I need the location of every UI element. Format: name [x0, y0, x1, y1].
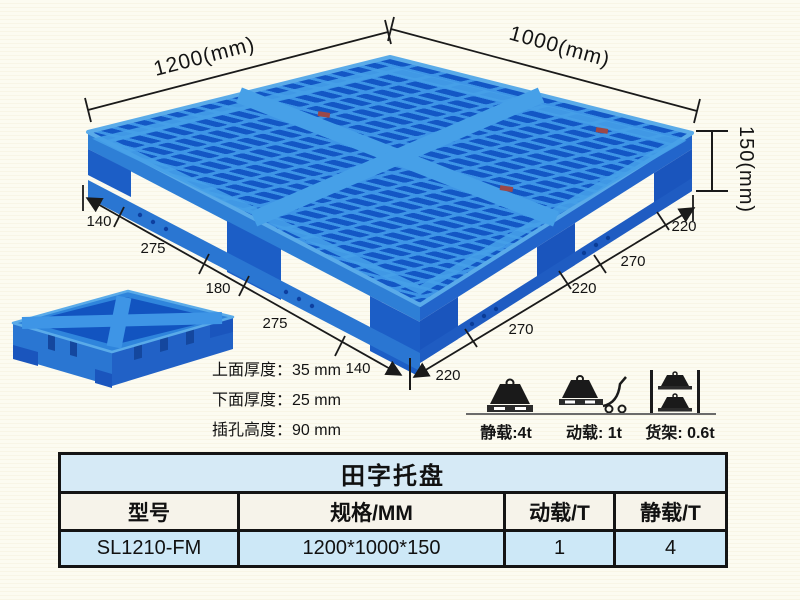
pallet-underside-illustration — [13, 291, 233, 388]
dim-1200-label: 1200(mm) — [151, 33, 257, 81]
static-load-label: 静载:4t — [468, 419, 544, 443]
spec-table: 田字托盘 型号 规格/MM 动载/T 静载/T SL1210-FM 1200*1… — [58, 452, 728, 568]
right-chain-dim-4: 270 — [620, 253, 645, 270]
right-chain-dim-1: 220 — [435, 367, 460, 384]
spec-cell-dynamic: 1 — [503, 532, 613, 565]
dynamic-load-icon — [556, 372, 636, 414]
product-sheet: 1200(mm) 1000(mm) 150(mm) 140 275 180 27… — [0, 0, 800, 600]
static-load-icon — [482, 378, 538, 414]
spec-cell-static: 4 — [613, 532, 725, 565]
dynamic-load-label: 动载: 1t — [548, 419, 640, 443]
spec-cell-model: SL1210-FM — [61, 532, 237, 565]
spec-header-dynamic: 动载/T — [503, 494, 613, 529]
note-bottom-thickness: 下面厚度：25 mm — [212, 386, 341, 416]
thickness-notes: 上面厚度：35 mm 下面厚度：25 mm 插孔高度：90 mm — [212, 356, 341, 446]
icons-baseline — [466, 413, 716, 415]
left-chain-dim-4: 275 — [262, 315, 287, 332]
rack-load-icon — [646, 368, 704, 415]
left-chain-dim-1: 140 — [86, 213, 111, 230]
left-chain-dim-3: 180 — [205, 280, 230, 297]
rack-load-label: 货架: 0.6t — [634, 419, 726, 443]
right-chain-dim-3: 220 — [571, 280, 596, 297]
note-top-thickness: 上面厚度：35 mm — [212, 356, 341, 386]
spec-header-size: 规格/MM — [237, 494, 503, 529]
spec-header-static: 静载/T — [613, 494, 725, 529]
spec-header-model: 型号 — [61, 494, 237, 529]
dimension-150: 150(mm) — [696, 126, 757, 213]
spec-table-header-row: 型号 规格/MM 动载/T 静载/T — [61, 494, 725, 532]
spec-cell-size: 1200*1000*150 — [237, 532, 503, 565]
spec-table-title: 田字托盘 — [61, 455, 725, 494]
left-chain-dim-5: 140 — [345, 360, 370, 377]
left-chain-dim-2: 275 — [140, 240, 165, 257]
spec-table-data-row: SL1210-FM 1200*1000*150 1 4 — [61, 532, 725, 565]
dim-150-label: 150(mm) — [735, 126, 757, 213]
right-chain-dim-5: 220 — [671, 218, 696, 235]
right-chain-dim-2: 270 — [508, 321, 533, 338]
note-fork-height: 插孔高度：90 mm — [212, 416, 341, 446]
